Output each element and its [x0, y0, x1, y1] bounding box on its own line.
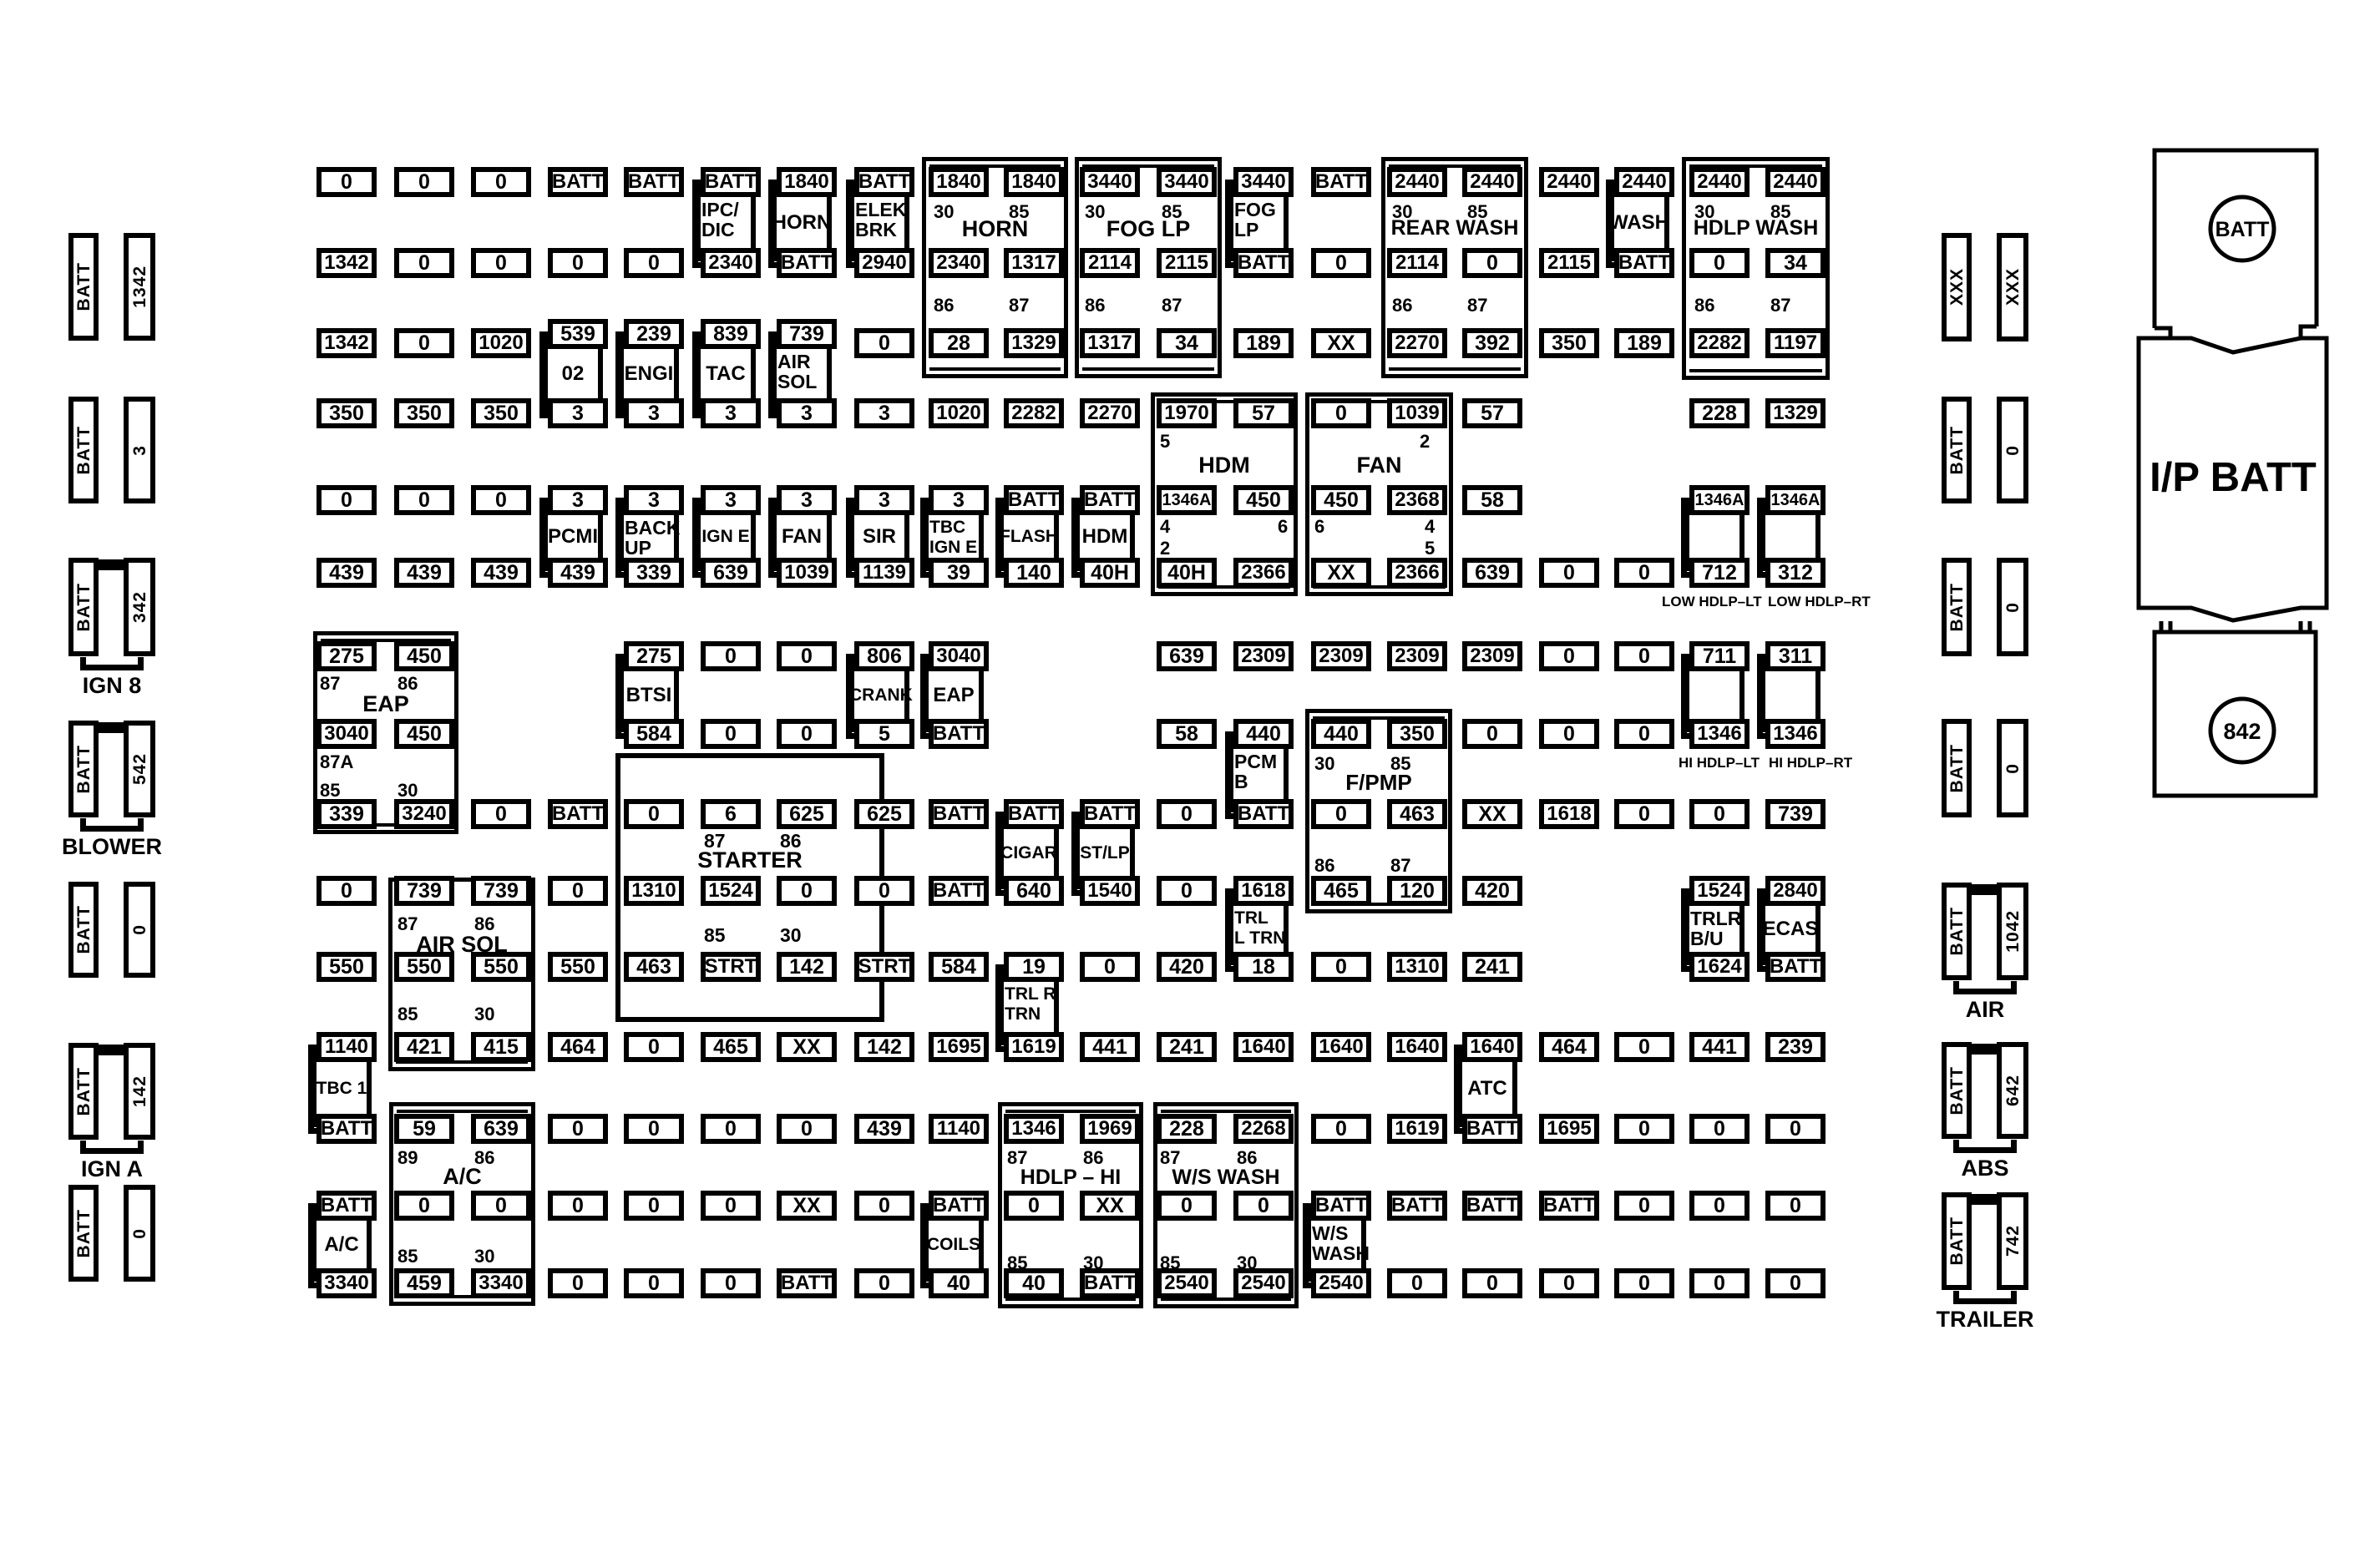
svg-text:I/P BATT: I/P BATT — [2150, 455, 2317, 500]
svg-text:BATT: BATT — [2215, 218, 2270, 241]
svg-text:842: 842 — [2223, 719, 2261, 744]
